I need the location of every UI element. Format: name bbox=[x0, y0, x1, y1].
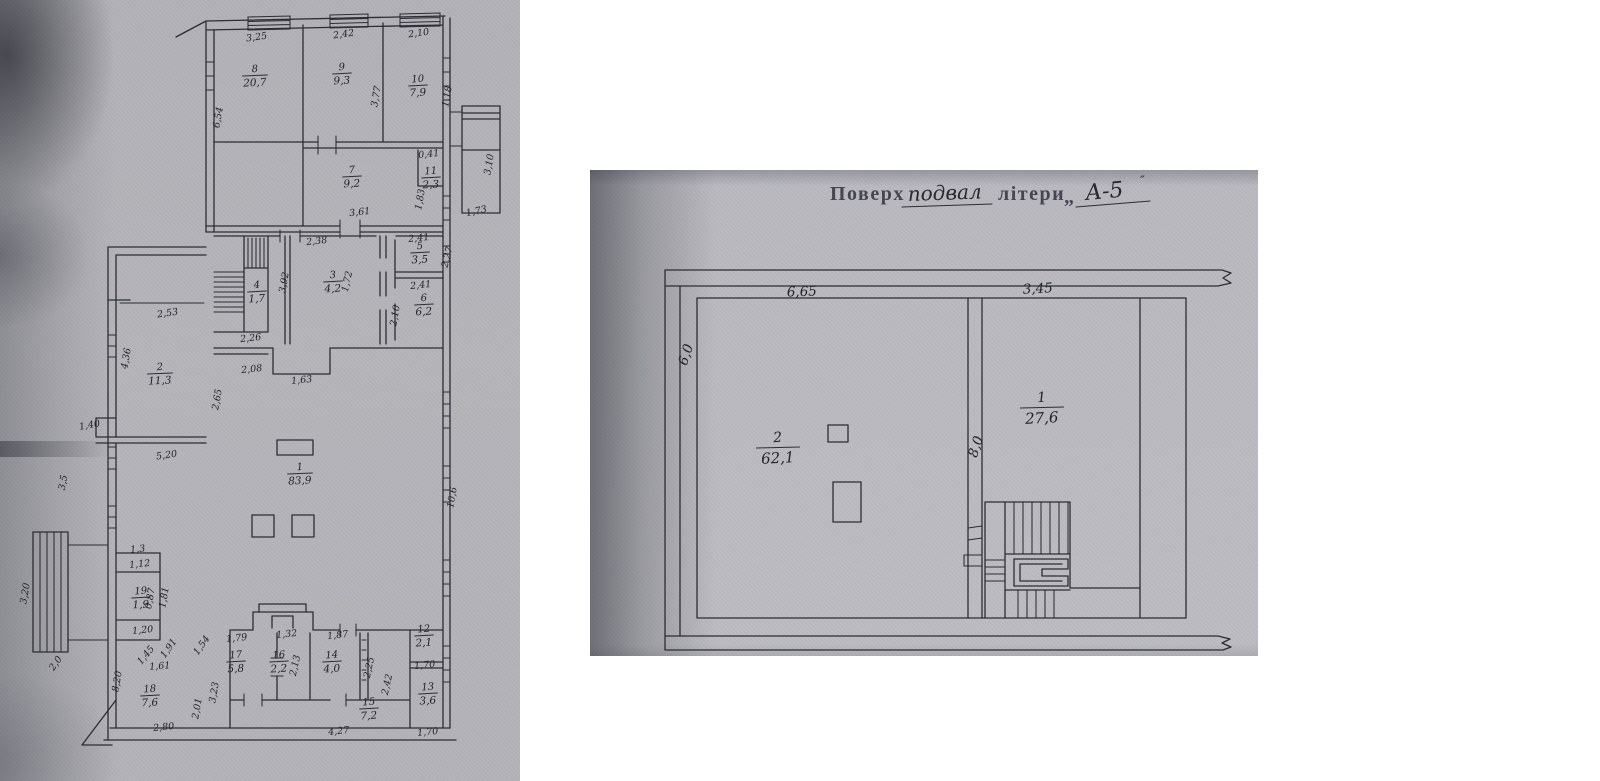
right-floorplan-drawing: Поверх подвал літери „ А-5 ″ bbox=[590, 170, 1258, 656]
room-number: 6 bbox=[420, 293, 428, 304]
dimension-label: 2,41 bbox=[407, 232, 430, 245]
room-number: 7 bbox=[348, 165, 356, 176]
title-letter-value: А-5 bbox=[1082, 178, 1124, 206]
room-label: 187,6 bbox=[141, 684, 160, 710]
room-area: 9,3 bbox=[333, 75, 351, 88]
dimension-label: 3,5 bbox=[57, 474, 70, 491]
room-number: 11 bbox=[424, 166, 437, 178]
dimension-label: 3,77 bbox=[369, 84, 384, 108]
stairs bbox=[985, 502, 1140, 618]
dimension-label: 2,41 bbox=[409, 279, 432, 292]
room-label: 144,0 bbox=[322, 650, 341, 676]
room-number: 18 bbox=[143, 684, 156, 696]
title-stamp-letters-word: літери bbox=[998, 183, 1065, 205]
room-label: 107,9 bbox=[409, 74, 428, 100]
dimension-label: 1,70 bbox=[417, 726, 439, 739]
room-label: 41,7 bbox=[248, 280, 267, 306]
dimension-label: 2,01 bbox=[190, 697, 205, 721]
dimension-label: 1,91 bbox=[158, 637, 179, 661]
dimension-label: 2,10 bbox=[406, 27, 429, 41]
walls-bottom-strip bbox=[104, 553, 456, 740]
dimension-label: 2,10 bbox=[388, 304, 403, 328]
dimension-label: 1,40 bbox=[78, 418, 101, 433]
room-label: 175,8 bbox=[227, 650, 246, 676]
room-label: 79,2 bbox=[343, 165, 362, 191]
room-label: 34,2 bbox=[323, 270, 342, 296]
title-open-quote: „ bbox=[1064, 186, 1076, 208]
dimension-label: 3,20 bbox=[18, 582, 33, 605]
dimension-label: 1,63 bbox=[291, 374, 313, 387]
dimension-label: 1,79 bbox=[226, 632, 248, 645]
dimension-label: 1,72 bbox=[340, 270, 355, 293]
dimension-label: 5,20 bbox=[155, 449, 177, 463]
dimension-label: 10,6 bbox=[445, 486, 460, 509]
title: Поверх подвал літери „ А-5 ″ bbox=[830, 174, 1150, 208]
dimension-label: 2,0 bbox=[47, 654, 65, 674]
dimension-label: 2,27 bbox=[439, 245, 456, 270]
left-floorplan-scan: 183,9211,334,241,753,566,279,2820,799,31… bbox=[0, 0, 520, 781]
dimension-label: 1,54 bbox=[191, 634, 212, 658]
title-stamp-floor-word: Поверх bbox=[830, 183, 905, 205]
room-label: 53,5 bbox=[411, 241, 430, 267]
room-number: 10 bbox=[411, 74, 425, 86]
room-area: 4,2 bbox=[323, 283, 342, 296]
dimension-label: 1,20 bbox=[132, 624, 154, 637]
dimension-label: 8,20 bbox=[110, 670, 125, 693]
dimension-label: 2,38 bbox=[305, 235, 328, 248]
dimension-label: 3,45 bbox=[1022, 280, 1053, 298]
room-area: 2,2 bbox=[269, 663, 288, 676]
room-area: 2,1 bbox=[414, 637, 432, 650]
room-labels: 183,9211,334,241,753,566,279,2820,799,31… bbox=[132, 62, 441, 723]
room-area: 83,9 bbox=[288, 474, 312, 487]
room-number: 16 bbox=[272, 650, 286, 662]
exterior-stair-hatch bbox=[33, 532, 116, 745]
room-number: 2 bbox=[155, 362, 163, 373]
room-number: 1 bbox=[296, 462, 303, 473]
room-area: 3,6 bbox=[419, 695, 437, 708]
room-label: 99,3 bbox=[333, 62, 352, 88]
room-area: 7,6 bbox=[141, 697, 159, 710]
dimension-label: 1,12 bbox=[129, 558, 151, 571]
room-area: 62,1 bbox=[761, 448, 795, 468]
dimension-label: 4,36 bbox=[119, 347, 134, 371]
dimension-label: 6,0 bbox=[675, 342, 697, 368]
dimension-label: 1,87 bbox=[327, 629, 350, 642]
dimension-label: 6,54 bbox=[211, 106, 226, 129]
room-area: 27,6 bbox=[1024, 408, 1060, 428]
dimension-label: 1,61 bbox=[149, 660, 171, 672]
left-floorplan-drawing: 183,9211,334,241,753,566,279,2820,799,31… bbox=[0, 0, 520, 781]
room-label: 820,7 bbox=[242, 64, 268, 90]
dimension-label: 3,23 bbox=[207, 681, 222, 704]
room-number: 1 bbox=[1037, 390, 1047, 407]
dimension-label: 3,25 bbox=[245, 31, 267, 45]
dimension-label: 3,10 bbox=[482, 153, 497, 176]
room-number: 3 bbox=[329, 270, 336, 281]
dimension-label: 6,65 bbox=[787, 283, 818, 300]
dimension-label: 1,3 bbox=[130, 543, 146, 556]
room-area: 6,2 bbox=[415, 306, 433, 319]
room-area: 20,7 bbox=[242, 76, 267, 89]
room-label: 183,9 bbox=[288, 462, 313, 488]
room-number: 8 bbox=[251, 64, 258, 75]
dimension-label: 1,18 bbox=[440, 85, 455, 108]
right-floorplan-scan: Поверх подвал літери „ А-5 ″ bbox=[590, 170, 1258, 656]
dimension-label: 1,73 bbox=[465, 204, 488, 219]
dimension-label: 4,27 bbox=[327, 725, 351, 738]
dimension-label: 2,26 bbox=[239, 332, 262, 345]
room-label: 127,6 bbox=[1020, 390, 1063, 428]
room-area: 5,8 bbox=[227, 663, 245, 676]
room-area: 7,9 bbox=[409, 87, 427, 100]
dimension-label: 2,80 bbox=[152, 721, 175, 734]
dimension-label: 1,83 bbox=[413, 188, 428, 211]
dimension-labels: 6,653,456,08,0 bbox=[675, 280, 1053, 459]
dimension-label: 0,41 bbox=[418, 148, 440, 161]
page: 183,9211,334,241,753,566,279,2820,799,31… bbox=[0, 0, 1600, 781]
room-number: 9 bbox=[338, 62, 346, 73]
dimension-label: 2,42 bbox=[331, 28, 354, 42]
dimension-label: 2,08 bbox=[240, 363, 263, 376]
room-label: 162,2 bbox=[269, 650, 288, 676]
dimension-label: 1,70 bbox=[414, 659, 436, 672]
dimension-label: 3,61 bbox=[349, 206, 371, 219]
dimension-label: 1,81 bbox=[157, 586, 172, 609]
dimension-label: 1,32 bbox=[276, 628, 298, 641]
room-label: 133,6 bbox=[419, 682, 438, 708]
outer-walls bbox=[665, 270, 1231, 650]
room-area: 3,5 bbox=[411, 254, 429, 267]
room-area: 4,0 bbox=[322, 663, 341, 676]
room-number: 15 bbox=[362, 697, 375, 709]
columns bbox=[828, 425, 861, 522]
room-number: 4 bbox=[252, 280, 260, 291]
title-flourish-mark: ″ bbox=[1140, 174, 1145, 189]
dimension-label: 2,13 bbox=[288, 654, 303, 678]
room-number: 14 bbox=[325, 650, 338, 662]
room-area: 1,7 bbox=[248, 293, 266, 306]
room-label: 262,1 bbox=[756, 430, 799, 468]
room-number: 13 bbox=[421, 682, 434, 694]
room-label: 211,3 bbox=[148, 362, 173, 388]
dimension-label: 2,53 bbox=[155, 307, 178, 321]
room-number: 17 bbox=[229, 650, 243, 662]
walls-right-side bbox=[443, 232, 450, 728]
room-area: 9,2 bbox=[343, 178, 361, 191]
dimension-label: 2,65 bbox=[210, 388, 225, 412]
room-label: 112,3 bbox=[421, 166, 440, 192]
hall-interior-columns bbox=[252, 440, 314, 537]
room-label: 122,1 bbox=[414, 624, 433, 650]
room-labels: 262,1127,6 bbox=[756, 390, 1063, 468]
title-floor-value: подвал bbox=[907, 179, 982, 206]
room-label: 66,2 bbox=[415, 293, 434, 319]
room-area: 11,3 bbox=[148, 374, 172, 387]
room-number: 2 bbox=[772, 430, 783, 447]
dimension-label: 2,42 bbox=[380, 673, 395, 697]
room-number: 12 bbox=[417, 624, 430, 636]
room-area: 7,2 bbox=[360, 710, 378, 723]
